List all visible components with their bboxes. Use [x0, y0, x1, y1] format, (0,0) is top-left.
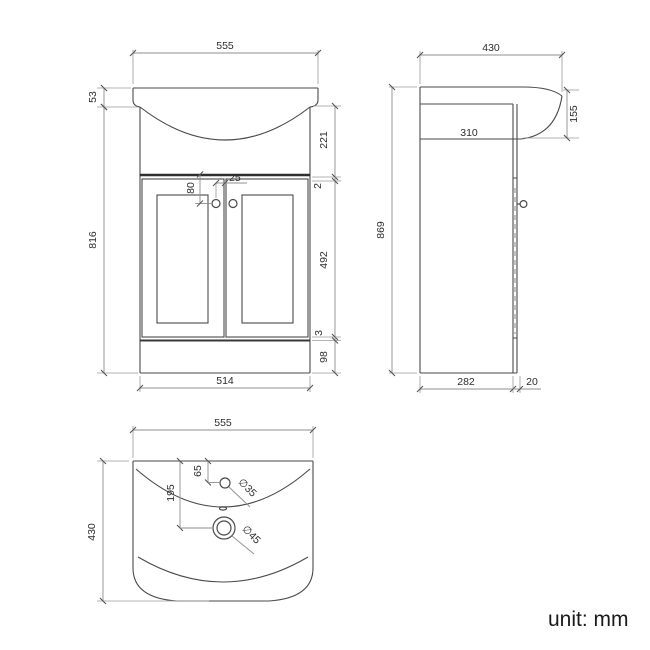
dim-plan-depth: 430	[86, 523, 98, 541]
dim-front-width-bottom: 514	[216, 375, 234, 387]
door-right-panel	[242, 195, 293, 323]
dim-front-door-height: 492	[318, 251, 330, 269]
plan-view-geometry	[133, 461, 313, 601]
front-view-geometry	[133, 88, 318, 373]
dim-side-basin-height: 155	[568, 105, 580, 123]
worktop-top-edge	[420, 87, 562, 96]
dim-front-basin-zone: 221	[318, 131, 330, 149]
knob-icon	[517, 201, 527, 208]
overflow-slot	[220, 507, 227, 510]
dim-plan-tap-offset: 65	[192, 465, 204, 477]
dim-plan-drain-diameter: ∅45	[240, 523, 263, 546]
basin-left-edge	[133, 88, 140, 107]
dim-side-depth-top: 430	[482, 42, 500, 54]
basin-right-edge	[310, 88, 318, 107]
tap-hole	[220, 478, 230, 488]
vanity-unit-technical-drawing: 555 53 816 221 2 492	[0, 0, 650, 650]
plan-bowl-front-curve	[138, 557, 308, 582]
door-handle-right	[229, 200, 237, 208]
basin-bowl-curve	[140, 107, 310, 140]
dim-plan-width: 555	[214, 417, 232, 429]
side-view: 430 869 310 155 282 20	[375, 42, 580, 393]
dim-front-width-top: 555	[216, 40, 234, 52]
door-handle-left	[212, 200, 220, 208]
dim-side-total-height: 869	[375, 221, 387, 239]
dim-front-gap-top: 2	[312, 183, 324, 189]
unit-note: unit: mm	[548, 608, 629, 631]
dim-side-body-depth: 282	[457, 376, 475, 388]
dim-front-handle-gap: 25	[229, 172, 241, 184]
plan-right-edge	[269, 461, 313, 601]
door-left-panel	[157, 195, 208, 323]
dim-front-lip-height: 53	[87, 91, 99, 103]
plan-view: 555 430 65 195 ∅35 ∅45	[86, 417, 313, 601]
plan-left-edge	[133, 461, 177, 601]
dim-side-inner-depth: 310	[460, 127, 478, 139]
door-right	[226, 179, 308, 337]
drain-hole-outer	[213, 517, 235, 539]
front-view-dimensions: 555 53 816 221 2 492	[87, 40, 341, 392]
dim-front-gap-bottom: 3	[313, 330, 325, 336]
technical-drawing-page: 555 53 816 221 2 492	[0, 0, 650, 650]
dim-front-cabinet-height: 816	[87, 231, 99, 249]
basin-side-curve	[521, 96, 562, 139]
dim-plan-drain-offset: 195	[165, 484, 177, 502]
plan-view-dimensions: 555 430 65 195 ∅35 ∅45	[86, 417, 313, 601]
side-view-dimensions: 430 869 310 155 282 20	[375, 42, 580, 393]
cabinet-outline	[140, 107, 310, 373]
dim-side-door-thickness: 20	[526, 376, 538, 388]
front-view: 555 53 816 221 2 492	[87, 40, 341, 392]
drain-hole-inner	[217, 521, 231, 535]
side-view-geometry	[420, 87, 562, 373]
dim-front-plinth-height: 98	[318, 351, 330, 363]
dim-front-handle-drop: 80	[185, 182, 197, 194]
